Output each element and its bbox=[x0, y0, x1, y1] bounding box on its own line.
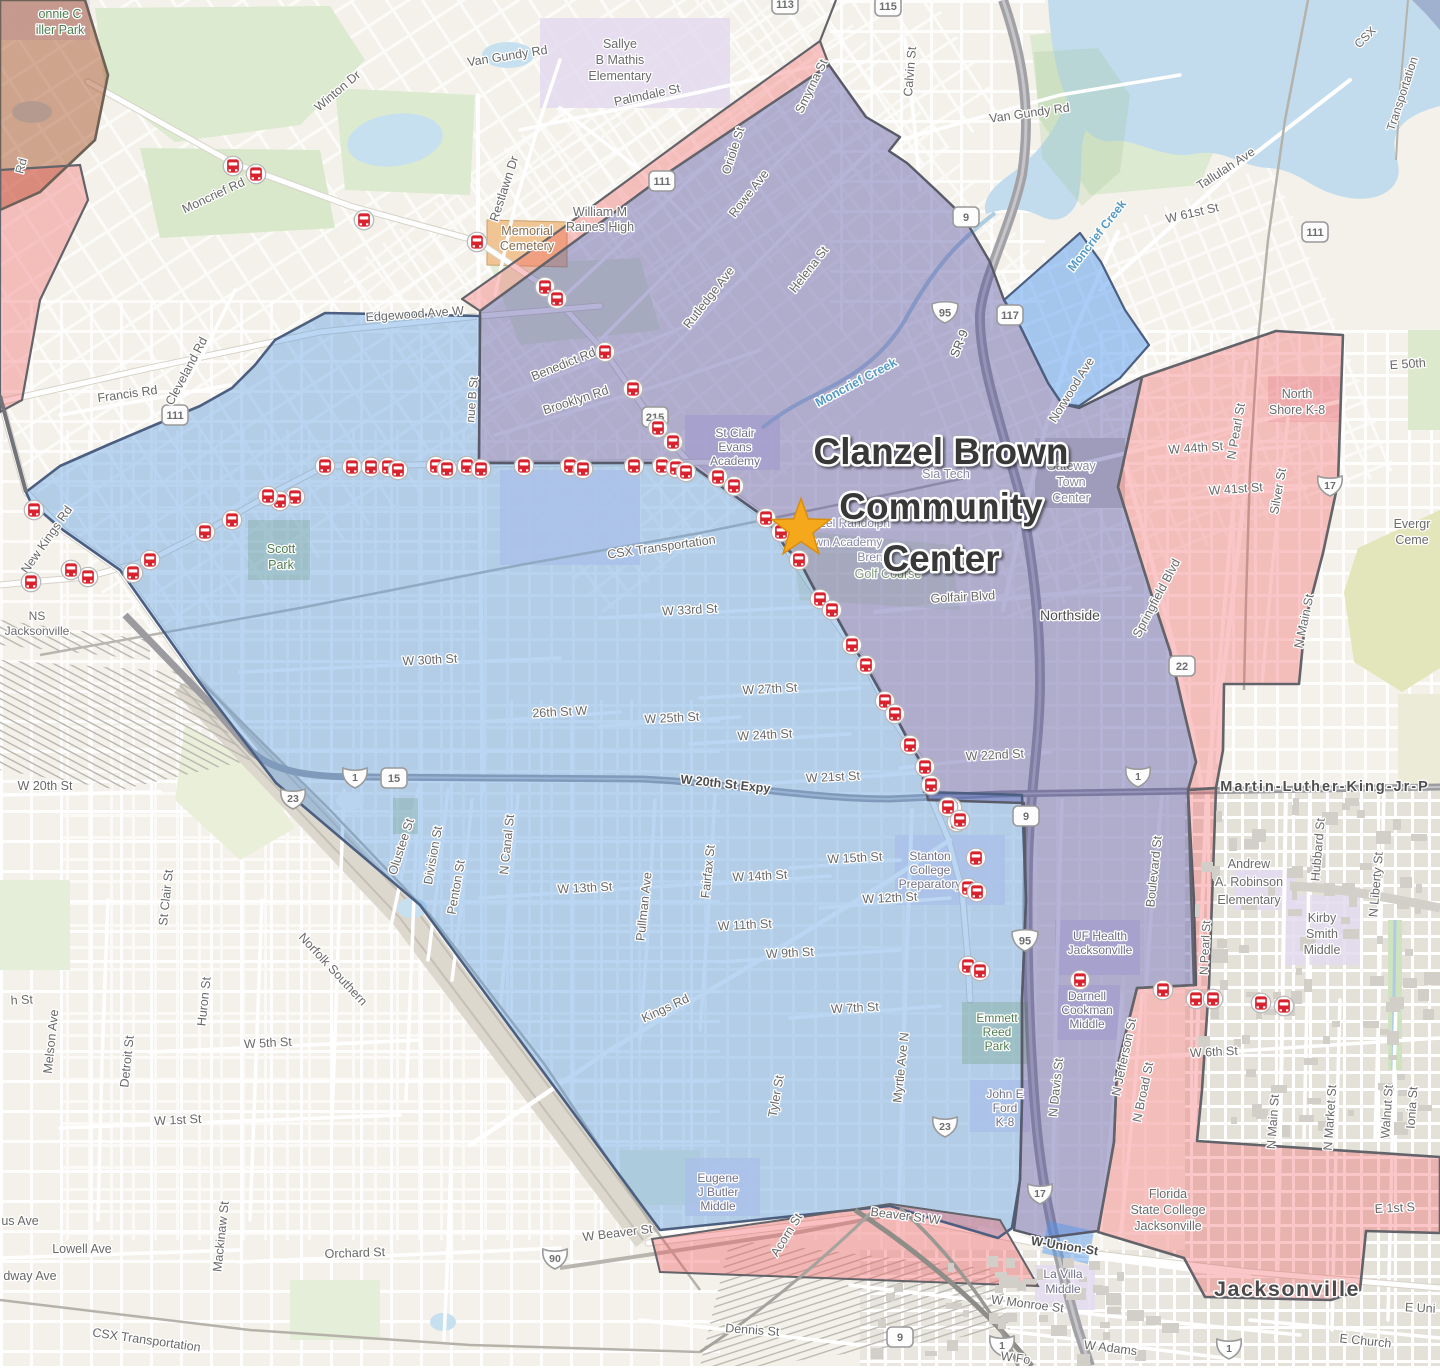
svg-text:Ionia St: Ionia St bbox=[1404, 1086, 1421, 1130]
svg-text:W 6th St: W 6th St bbox=[1189, 1044, 1238, 1061]
svg-text:113: 113 bbox=[776, 0, 794, 11]
svg-text:h St: h St bbox=[10, 992, 33, 1007]
svg-text:MemorialCemetery: MemorialCemetery bbox=[500, 224, 555, 253]
svg-text:22: 22 bbox=[1176, 661, 1188, 673]
svg-text:W 1st St: W 1st St bbox=[154, 1112, 202, 1128]
svg-text:111: 111 bbox=[166, 410, 183, 422]
svg-text:W 12th St: W 12th St bbox=[862, 890, 918, 907]
svg-text:dway Ave: dway Ave bbox=[3, 1269, 56, 1283]
svg-text:Martin-Luther-King-Jr-P: Martin-Luther-King-Jr-P bbox=[1220, 779, 1430, 795]
svg-text:E Uni: E Uni bbox=[1405, 1300, 1436, 1316]
svg-text:Orchard St: Orchard St bbox=[324, 1245, 385, 1261]
svg-text:Lowell Ave: Lowell Ave bbox=[52, 1242, 112, 1256]
svg-text:23: 23 bbox=[287, 793, 299, 805]
svg-text:17: 17 bbox=[1324, 480, 1336, 492]
svg-text:W 15th St: W 15th St bbox=[827, 850, 883, 867]
svg-text:115: 115 bbox=[879, 1, 897, 13]
svg-text:William MRaines High: William MRaines High bbox=[566, 205, 634, 234]
svg-text:W 27th St: W 27th St bbox=[742, 681, 798, 698]
svg-text:1: 1 bbox=[1135, 771, 1141, 783]
svg-text:95: 95 bbox=[1019, 936, 1031, 948]
svg-text:90: 90 bbox=[549, 1253, 561, 1265]
svg-text:E 1st S: E 1st S bbox=[1374, 1200, 1415, 1216]
svg-text:23: 23 bbox=[939, 1121, 951, 1133]
svg-text:EugeneJ ButlerMiddle: EugeneJ ButlerMiddle bbox=[697, 1171, 739, 1213]
svg-text:KirbySmithMiddle: KirbySmithMiddle bbox=[1304, 911, 1341, 957]
svg-text:Clanzel Brown: Clanzel Brown bbox=[814, 431, 1069, 472]
svg-text:15: 15 bbox=[388, 773, 400, 785]
svg-text:17: 17 bbox=[1034, 1188, 1046, 1200]
svg-text:us Ave: us Ave bbox=[1, 1214, 38, 1228]
svg-text:9: 9 bbox=[1023, 811, 1029, 823]
svg-text:Jacksonville: Jacksonville bbox=[1214, 1277, 1360, 1301]
svg-text:W 20th St: W 20th St bbox=[18, 779, 73, 793]
svg-text:26th St W: 26th St W bbox=[532, 704, 588, 721]
svg-text:111: 111 bbox=[1306, 227, 1323, 239]
svg-text:W 7th St: W 7th St bbox=[830, 1000, 879, 1017]
svg-text:W Fo: W Fo bbox=[1000, 1349, 1032, 1366]
svg-text:E 50th: E 50th bbox=[1389, 356, 1426, 372]
svg-text:W 13th St: W 13th St bbox=[557, 880, 613, 897]
svg-text:Community: Community bbox=[839, 486, 1043, 527]
svg-text:own Academy: own Academy bbox=[808, 535, 883, 549]
svg-text:W 5th St: W 5th St bbox=[243, 1035, 292, 1052]
svg-text:W 9th St: W 9th St bbox=[765, 945, 814, 962]
svg-text:1: 1 bbox=[1226, 1343, 1232, 1355]
svg-text:UF HealthJacksonville: UF HealthJacksonville bbox=[1068, 929, 1133, 957]
svg-text:Northside: Northside bbox=[1040, 607, 1100, 623]
svg-text:117: 117 bbox=[1001, 310, 1019, 322]
svg-text:W 25th St: W 25th St bbox=[644, 710, 700, 727]
svg-text:1: 1 bbox=[352, 772, 358, 784]
svg-text:N Pearl St: N Pearl St bbox=[1197, 919, 1214, 975]
svg-text:W 30th St: W 30th St bbox=[402, 652, 458, 669]
svg-text:9: 9 bbox=[963, 212, 969, 224]
svg-text:95: 95 bbox=[939, 308, 951, 320]
svg-text:W 11th St: W 11th St bbox=[717, 917, 772, 934]
svg-text:Center: Center bbox=[882, 538, 999, 579]
svg-text:W 24th St: W 24th St bbox=[737, 727, 793, 744]
svg-text:W 33rd St: W 33rd St bbox=[662, 602, 719, 619]
svg-text:Bren: Bren bbox=[857, 550, 882, 564]
svg-text:9: 9 bbox=[897, 1332, 903, 1344]
svg-text:111: 111 bbox=[653, 176, 670, 188]
svg-text:W 14th St: W 14th St bbox=[732, 868, 788, 885]
svg-text:La VillaMiddle: La VillaMiddle bbox=[1043, 1267, 1082, 1296]
svg-text:W 21st St: W 21st St bbox=[805, 769, 860, 786]
